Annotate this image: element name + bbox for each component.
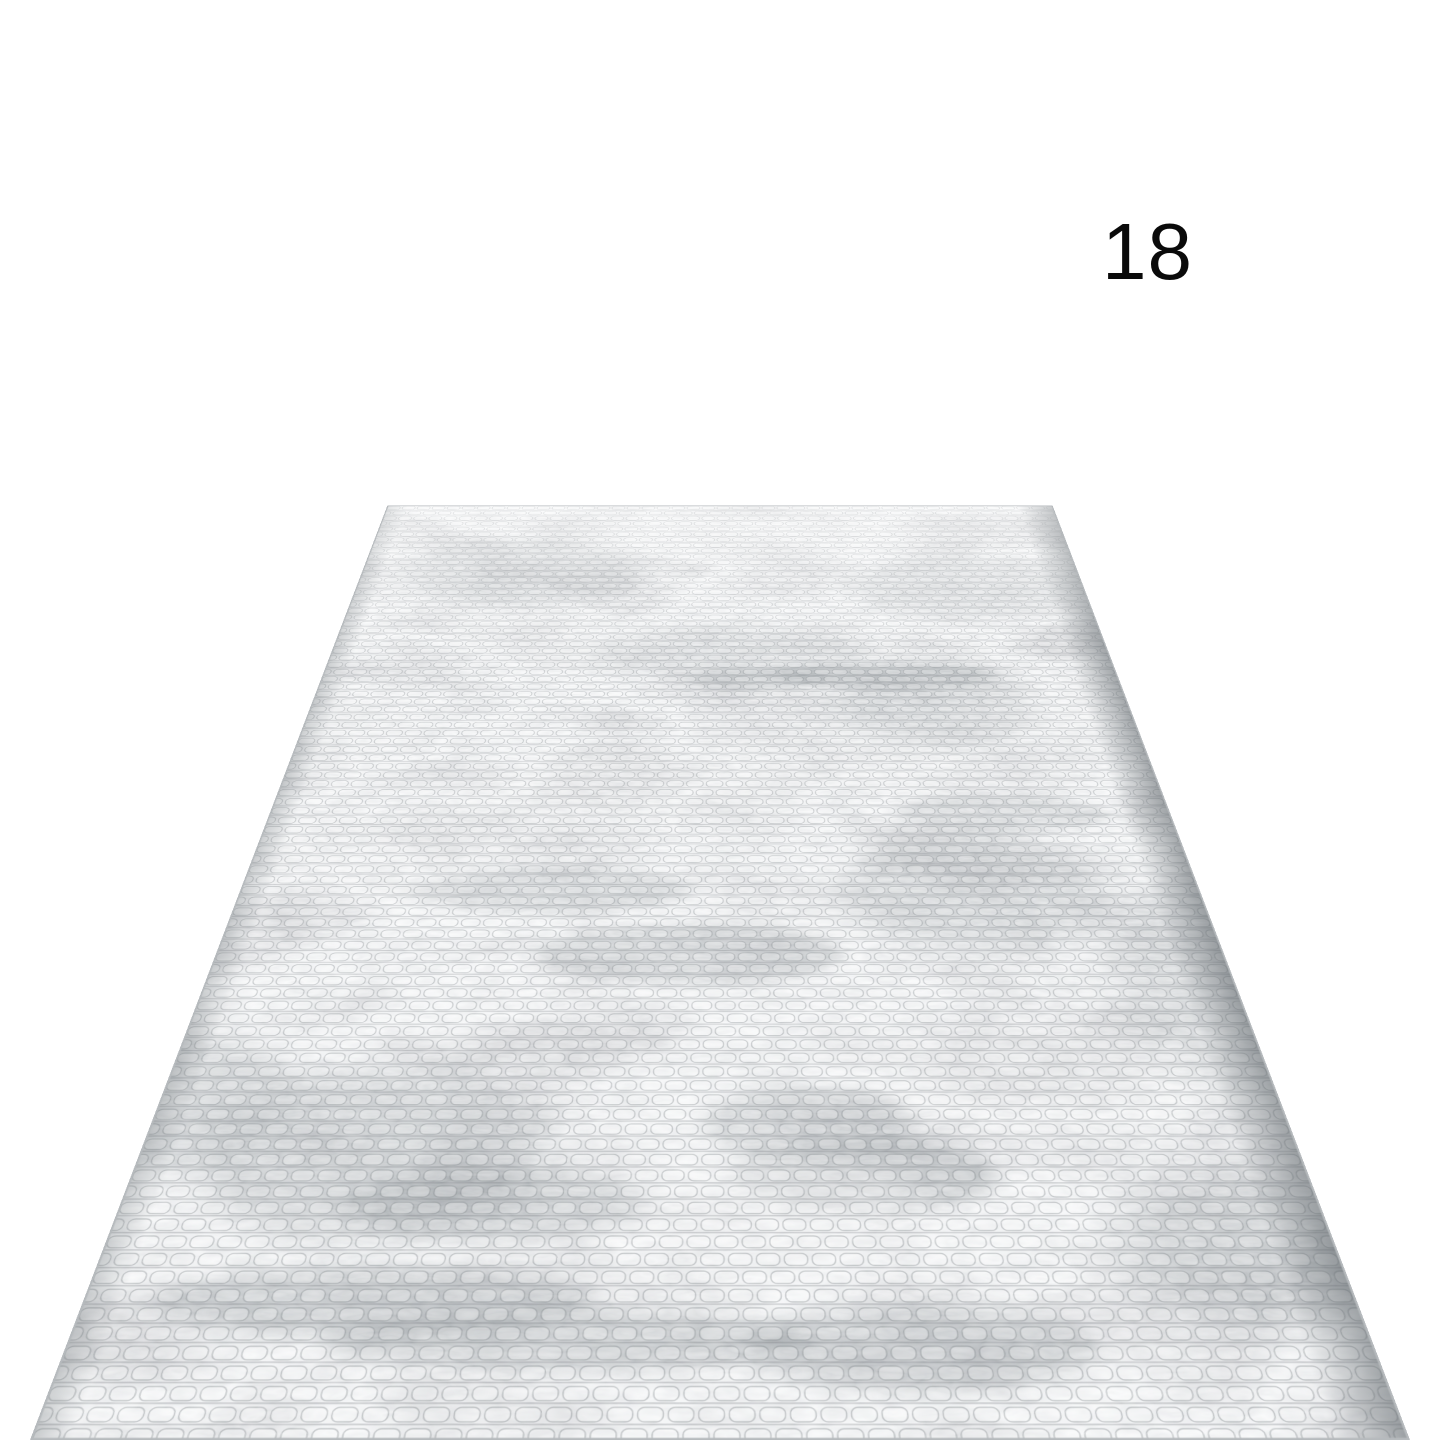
photo-index-label: 18: [1102, 212, 1193, 292]
photo-canvas: 18: [0, 0, 1440, 1440]
rug-photo: [30, 506, 1410, 1440]
rug-texture: [30, 506, 1410, 1440]
